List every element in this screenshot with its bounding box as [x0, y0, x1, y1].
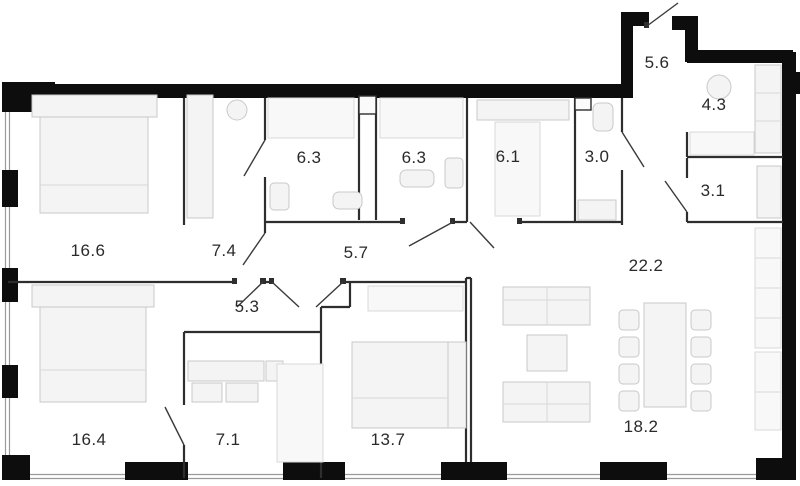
room-area-label: 7.1 [216, 430, 241, 450]
room-area-label: 6.1 [496, 147, 521, 167]
floor-plan-drawing [0, 0, 800, 486]
room-area-label: 5.7 [344, 243, 369, 263]
room-area-label: 5.6 [645, 53, 670, 73]
toilet-icon [270, 183, 289, 210]
bed-icon [32, 95, 157, 213]
room-area-label: 22.2 [629, 256, 664, 276]
room-area-label: 16.4 [72, 430, 107, 450]
bed-icon [352, 342, 466, 428]
shelf-icon [277, 364, 323, 462]
room-area-label: 16.6 [71, 241, 106, 261]
sink-icon [593, 103, 613, 131]
wardrobe-icon [495, 122, 540, 216]
room-area-label: 3.0 [585, 147, 610, 167]
washer-icon [578, 200, 616, 220]
washer-icon [188, 361, 283, 402]
room-area-label: 4.3 [702, 95, 727, 115]
room-area-label: 6.3 [402, 148, 427, 168]
room-area-label: 6.3 [297, 148, 322, 168]
bed-icon [32, 285, 154, 402]
room-area-label: 5.3 [235, 297, 260, 317]
shelf-icon [757, 166, 781, 218]
wardrobe-icon [368, 286, 463, 311]
room-area-label: 13.7 [371, 430, 406, 450]
sofa-icon [503, 287, 590, 325]
sink-icon [400, 170, 434, 187]
shower-icon [380, 98, 463, 138]
coffee-table-icon [527, 335, 567, 371]
sink-icon [333, 192, 362, 209]
wall-pier [600, 462, 667, 480]
furniture [32, 65, 781, 462]
wall-pier [2, 170, 18, 207]
room-area-label: 3.1 [701, 181, 726, 201]
nightstand-icon [227, 100, 247, 120]
wardrobe-icon [187, 95, 213, 218]
toilet-icon [445, 158, 463, 188]
shower-icon [268, 98, 354, 138]
wall-pier [2, 455, 30, 480]
shelf-icon [477, 100, 569, 120]
sofa-icon [503, 382, 590, 422]
wall-pier [2, 365, 18, 398]
wall-pier [125, 462, 188, 480]
floor-plan: 16.6 7.4 6.3 6.3 6.1 3.0 5.6 4.3 3.1 5.7… [0, 0, 800, 486]
wall-pier [283, 462, 345, 480]
wall-pier [2, 268, 18, 302]
duct-shaft [359, 96, 376, 114]
room-area-label: 18.2 [624, 417, 659, 437]
wardrobe-icon [755, 228, 781, 430]
duct-shaft [575, 98, 591, 110]
room-area-label: 7.4 [212, 241, 237, 261]
dining-table-icon [644, 303, 686, 407]
wall-pier [441, 462, 507, 480]
